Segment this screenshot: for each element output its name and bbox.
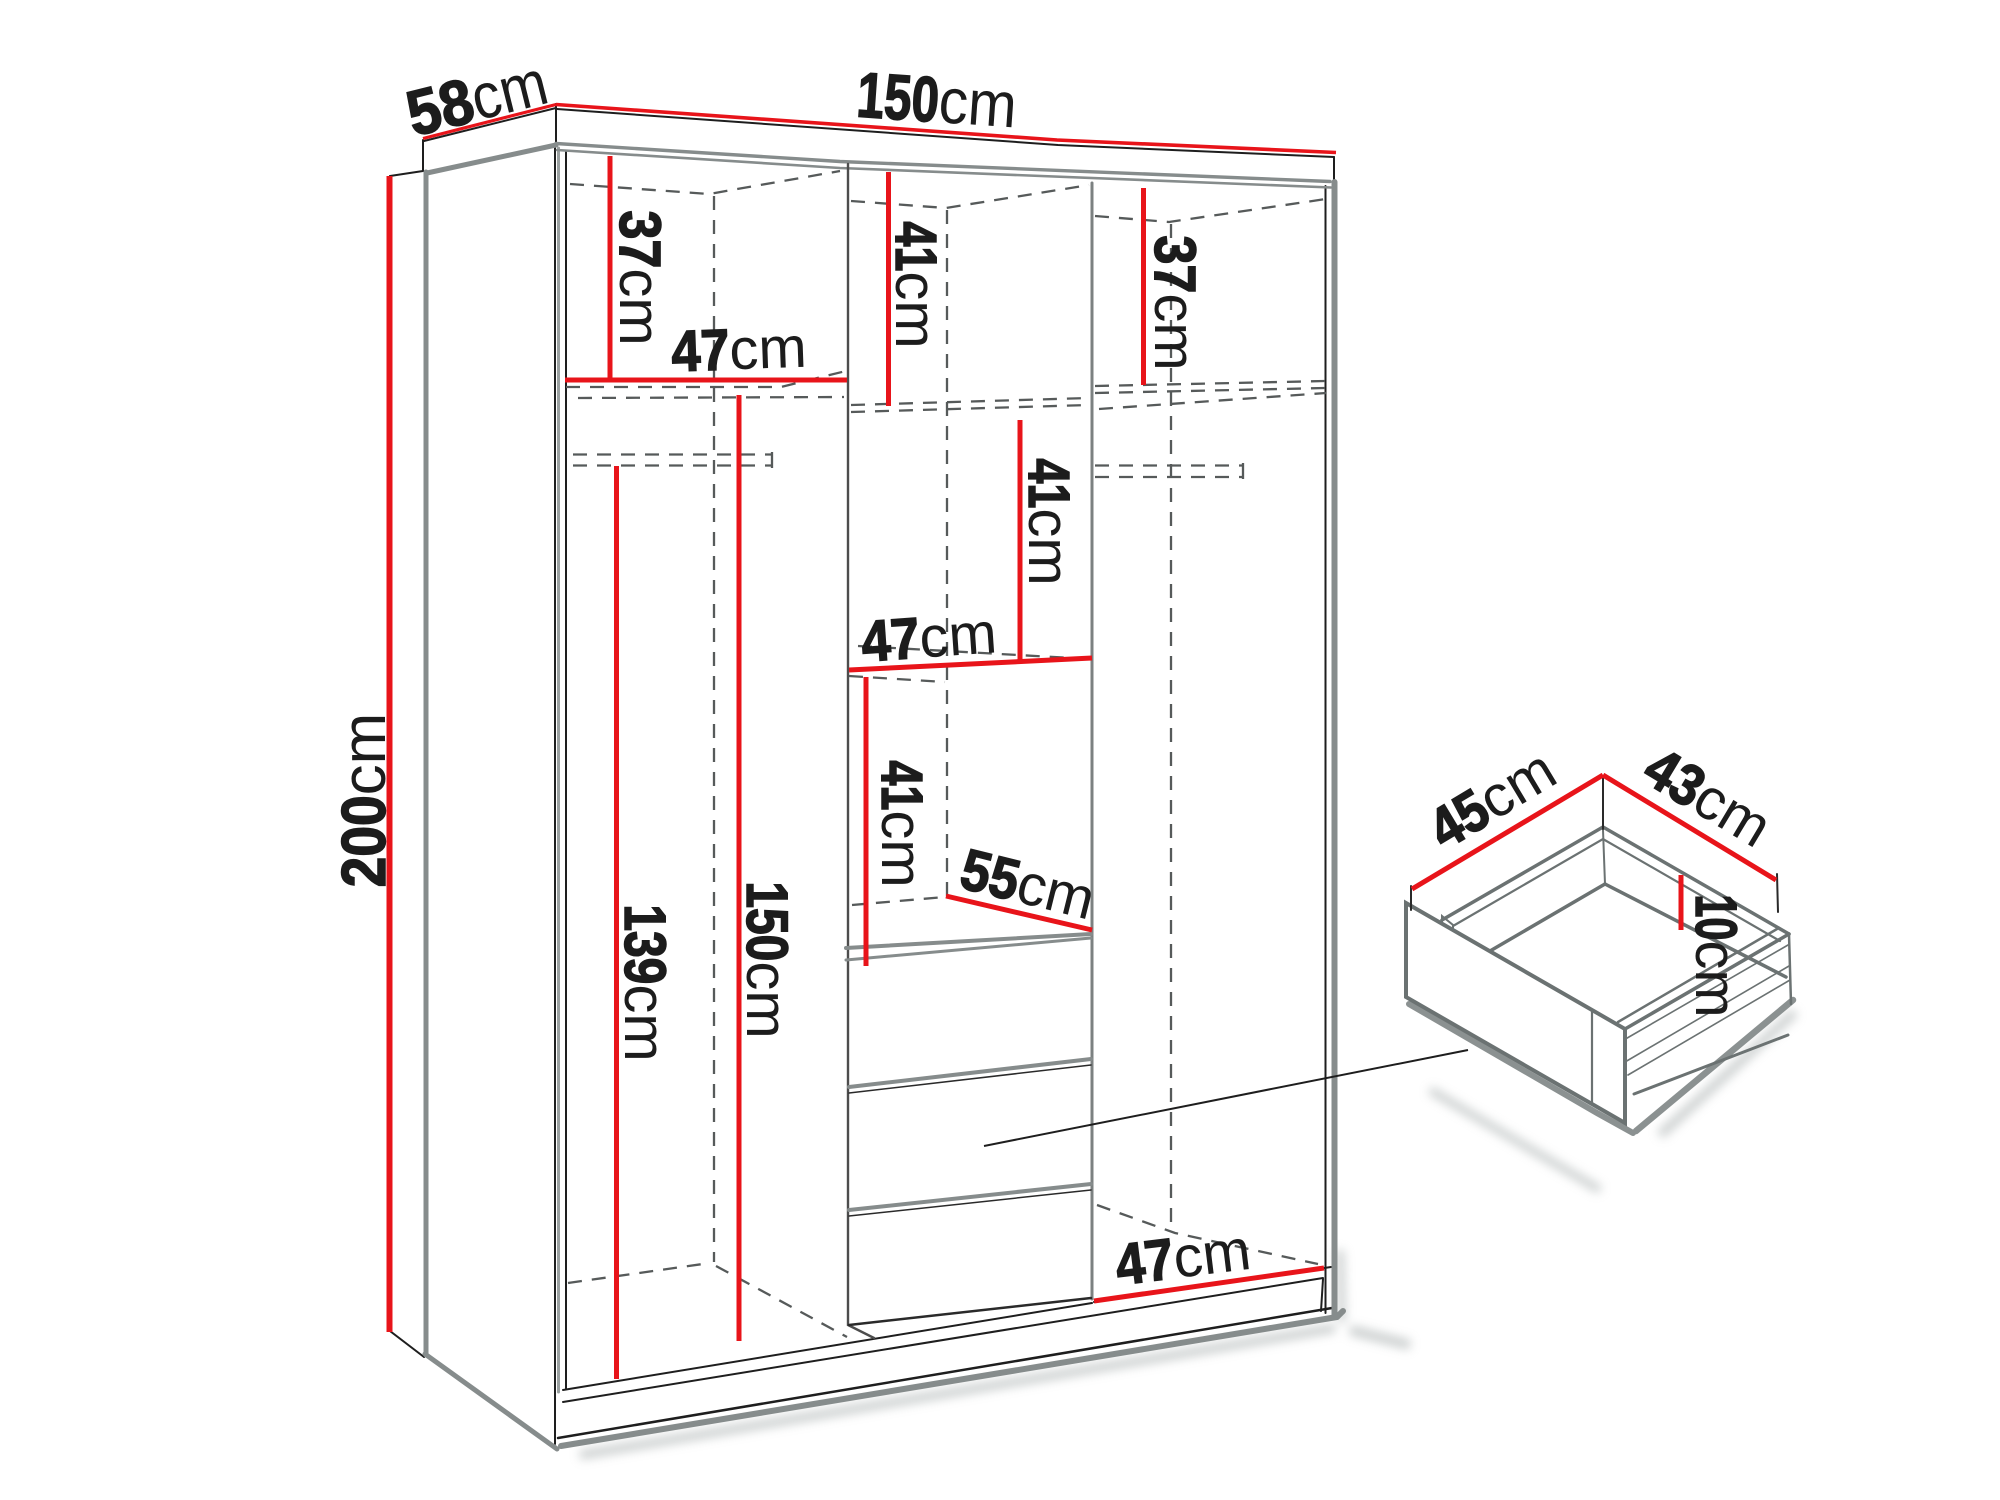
svg-text:37cm: 37cm: [608, 210, 673, 345]
svg-text:41cm: 41cm: [870, 760, 935, 887]
svg-text:150cm: 150cm: [855, 59, 1020, 142]
svg-text:41cm: 41cm: [884, 221, 949, 348]
svg-text:139cm: 139cm: [613, 904, 678, 1061]
svg-text:150cm: 150cm: [735, 881, 800, 1038]
svg-text:37cm: 37cm: [1143, 235, 1208, 370]
svg-text:47cm: 47cm: [859, 600, 999, 674]
svg-text:10cm: 10cm: [1684, 894, 1749, 1017]
svg-text:47cm: 47cm: [670, 314, 808, 384]
svg-text:41cm: 41cm: [1017, 458, 1082, 585]
svg-text:200cm: 200cm: [330, 713, 399, 888]
